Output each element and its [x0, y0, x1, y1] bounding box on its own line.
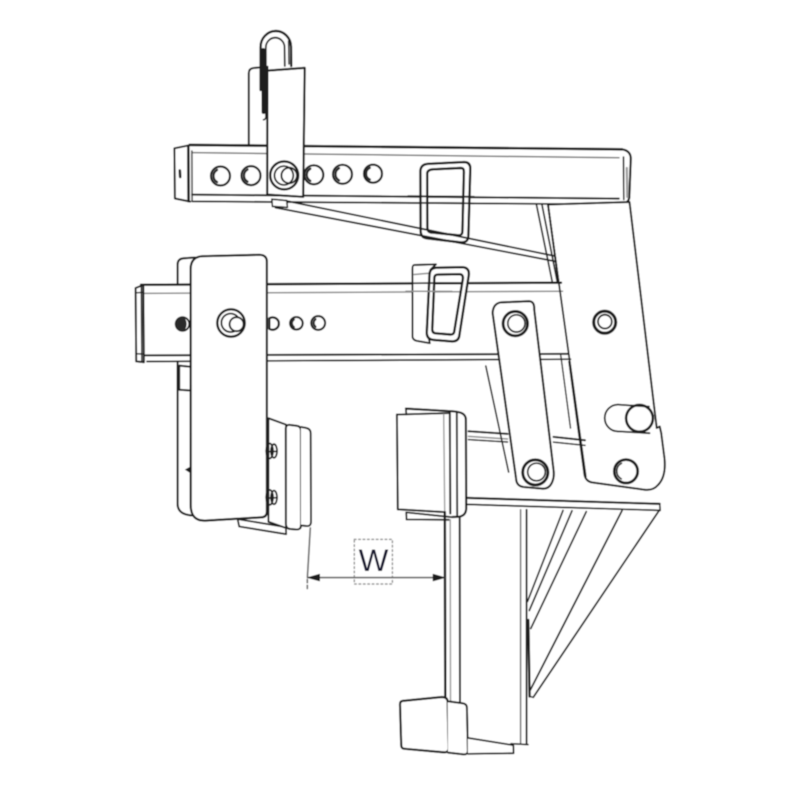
svg-text:W: W	[359, 542, 389, 578]
